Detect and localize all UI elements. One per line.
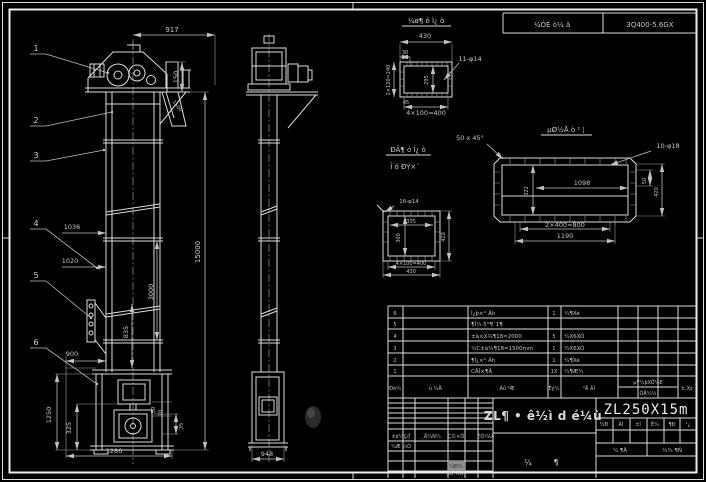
bom-header-unit-weight: µ¥¼þXÖ¼E: [633, 379, 662, 386]
svg-text:3: 3: [393, 346, 396, 352]
stage-cell-1: ¼Ð: [600, 422, 609, 428]
detail-b-dim-1098: 1098: [574, 179, 591, 187]
svg-text:¼X6XÓ: ¼X6XÓ: [564, 333, 585, 340]
drawing-title: ZL¶ • ê½ì d é¼ù: [484, 409, 602, 423]
dim-1020: 1020: [62, 257, 79, 265]
dim-948: 948: [261, 450, 273, 458]
bom-row: 4 ±ä×X¾¶18=2000 5 ¼X6XÓ: [393, 333, 585, 340]
bom-row: 6 Í¿þ×° Àh 1 ¼¶Xè: [393, 310, 580, 317]
svg-text:¼¶Æ¼: ¼¶Æ¼: [564, 369, 584, 375]
bom-header-material: ²Ä ÁÏ: [583, 385, 595, 392]
dim-1286: 1286: [106, 447, 123, 455]
dim-15000: 15000: [194, 241, 202, 263]
sig-header-3: Ç©×Ö: [448, 433, 465, 440]
svg-text:4: 4: [393, 334, 396, 340]
dim-1250: 1250: [45, 407, 53, 424]
drawing-canvas: ¼ÓÈ ò¼ ä 3Q400-5.6GX 917: [0, 0, 706, 482]
svg-text:5: 5: [393, 322, 396, 328]
svg-text:2: 2: [393, 358, 396, 364]
detail-a-dim-400: 4×100=400: [406, 109, 446, 117]
bom-header-name: Ãû ³Æ: [499, 385, 514, 392]
model-spec-label: 3Q400-5.6GX: [626, 21, 673, 29]
svg-text:6: 6: [393, 311, 396, 317]
process-label: ¼ÓÈ ò¼ ä: [534, 20, 571, 29]
detail-b-dim-1190: 1190: [557, 232, 574, 240]
sig-row-check: Éó ¼Ñ: [447, 469, 464, 477]
detail-b-dim-420: 420: [654, 187, 660, 197]
detail-a-dim-240: 2×120=240: [386, 65, 392, 96]
svg-text:1: 1: [552, 311, 555, 317]
svg-text:1: 1: [552, 358, 555, 364]
stage-cell-5: ¶Ð: [668, 422, 675, 428]
svg-text:¶Î¿×° Àh: ¶Î¿×° Àh: [471, 357, 496, 364]
svg-text:¶Î¼·5°¶´1¶: ¶Î¼·5°¶´1¶: [471, 321, 503, 328]
dim-917: 917: [165, 26, 178, 34]
dim-50: 50: [151, 407, 157, 413]
detail-b-title: µØ½Å ò ¹ ¦: [547, 125, 585, 134]
svg-text:¼¶Xè: ¼¶Xè: [564, 357, 580, 364]
detail-b-dim-322: 322: [524, 186, 530, 196]
dim-3000: 3000: [147, 284, 155, 301]
detail-casing-long: µØ½Å ò ¹ ¦ 10-φ18 1098 322 2×400=800 119…: [494, 125, 680, 244]
svg-text:Í¿þ×° Àh: Í¿þ×° Àh: [471, 310, 496, 317]
detail-a-dim-30: 30: [402, 50, 408, 56]
svg-text:CÅÎ×¶Å: CÅÎ×¶Å: [471, 368, 492, 375]
sheet-label-right: ¶: [553, 458, 558, 467]
header-strip: ¼ÓÈ ò¼ ä 3Q400-5.6GX: [503, 13, 697, 33]
balloon-4: 4: [33, 219, 38, 228]
sig-row-design: ¼Æ ¼Ò: [391, 443, 411, 450]
dim-70: 70: [158, 410, 164, 416]
stage-cell-2: ÀÌ: [619, 421, 624, 428]
detail-b-holes-callout: 10-φ18: [656, 142, 679, 150]
svg-text:±ä×X¾¶18=2000: ±ä×X¾¶18=2000: [471, 334, 522, 340]
dim-35: 35: [179, 423, 185, 429]
detail-b-dim-800: 2×400=800: [545, 221, 585, 229]
dim-325: 325: [65, 422, 73, 434]
note-line1: ÐÂ¶ ó Ì¿ ò: [390, 145, 426, 154]
front-dimensions: 917 150 1500 15000 1036 1020 3000 835 90…: [45, 26, 215, 459]
sheet-count-left: ¼ ¶Å: [613, 447, 628, 454]
stage-cell-6: ¹¿: [686, 422, 691, 428]
note-line2: Î ó ÐÝ×¨: [390, 162, 419, 171]
bom-header-no: Ðò¼: [389, 385, 401, 392]
stage-cell-4: Ê¼: [651, 420, 659, 428]
bom-header-total-weight: ÓÅ¼¼: [639, 390, 656, 397]
balloon-1: 1: [33, 44, 38, 53]
dim-900: 900: [66, 350, 78, 358]
detail-c-dim-420: 420: [441, 232, 447, 242]
svg-text:1: 1: [393, 369, 396, 375]
detail-flange-small: ¼ø¶ ó Ì¿ ò 430 30 2×120=240 295 11-φ14 4…: [386, 16, 482, 117]
bom-row: 2 ¶Î¿×° Àh 1 ¼¶Xè: [393, 357, 580, 364]
svg-text:¼C±ä¾¶18=1500mm: ¼C±ä¾¶18=1500mm: [471, 346, 533, 352]
dim-150: 150: [172, 71, 180, 83]
detail-c-holes-callout: 16-φ14: [399, 199, 419, 205]
svg-text:1X: 1X: [551, 369, 558, 375]
section-notes: ÐÂ¶ ó Ì¿ ò Î ó ÐÝ×¨ 50 x 45°: [386, 134, 503, 171]
sheet-label-left: ¼: [524, 458, 532, 467]
balloon-5: 5: [33, 271, 38, 280]
detail-c-dim-400: 4×100=400: [396, 261, 427, 267]
stage-cell-3: ±Ì: [635, 421, 641, 428]
svg-text:1: 1: [552, 346, 555, 352]
balloon-6: 6: [33, 338, 38, 347]
dim-835: 835: [122, 326, 130, 338]
svg-text:¼¶Xè: ¼¶Xè: [564, 310, 580, 317]
detail-flange-square: 16-φ14 335 300 420 4×100=400 430: [377, 199, 452, 278]
detail-a-title: ¼ø¶ ó Ì¿ ò: [408, 16, 445, 25]
detail-c-dim-335: 335: [406, 219, 416, 225]
detail-a-dim-295: 295: [424, 75, 430, 85]
model-number: ZL250X15m: [604, 402, 689, 418]
bom-row: 5 ¶Î¼·5°¶´1¶: [393, 321, 502, 328]
bom-header-code: ´ú ¼Å: [426, 385, 442, 392]
title-block: ±ê¼Ç(Î ¸Ä¼Ñ¼ Ç©×Ö ÈÕ¼Ú ¼Æ ¼Ò ¼Ð¼ Éó ¼Ñ Z…: [388, 398, 697, 478]
sig-header-4: ÈÕ¼Ú: [477, 432, 493, 440]
detail-c-dim-300: 300: [396, 233, 402, 243]
balloon-3: 3: [33, 151, 38, 160]
bom-row: 3 ¼C±ä¾¶18=1500mm 1 ¼X6XÓ: [393, 345, 585, 352]
sig-header-2: ¸Ä¼Ñ¼: [421, 433, 441, 440]
bom-header-qty: Êý¼: [549, 384, 560, 392]
detail-a-holes-callout: 11-φ14: [458, 55, 481, 63]
part-balloons: 1 2 3 4 5 6: [30, 44, 113, 385]
dim-1036: 1036: [64, 223, 81, 231]
sig-header-1: ±ê¼Ç(Î: [391, 433, 411, 440]
bom-table: Ðò¼ ´ú ¼Å Ãû ³Æ Êý¼ ²Ä ÁÏ µ¥¼þXÖ¼E ÓÅ¼¼ …: [388, 306, 697, 478]
detail-c-dim-430: 430: [406, 269, 416, 275]
side-elevation: 948: [246, 34, 321, 464]
sheet-count-right: ¼¼ ¶Ñ: [662, 447, 682, 454]
balloon-2: 2: [33, 116, 38, 125]
detail-a-dim-430: 430: [419, 32, 431, 40]
bom-row: 1 CÅÎ×¶Å 1X ¼¶Æ¼: [393, 368, 584, 375]
chamfer-note: 50 x 45°: [456, 134, 484, 142]
bom-header-remark: ±,X¢: [681, 386, 693, 392]
cad-drawing-sheet: ¼ÓÈ ò¼ ä 3Q400-5.6GX 917: [0, 0, 706, 482]
sig-gray-label: ¼Ð¼: [449, 464, 463, 470]
svg-text:¼X6XÓ: ¼X6XÓ: [564, 345, 585, 352]
detail-b-dim-50: 50: [642, 178, 648, 184]
svg-text:5: 5: [552, 334, 555, 340]
